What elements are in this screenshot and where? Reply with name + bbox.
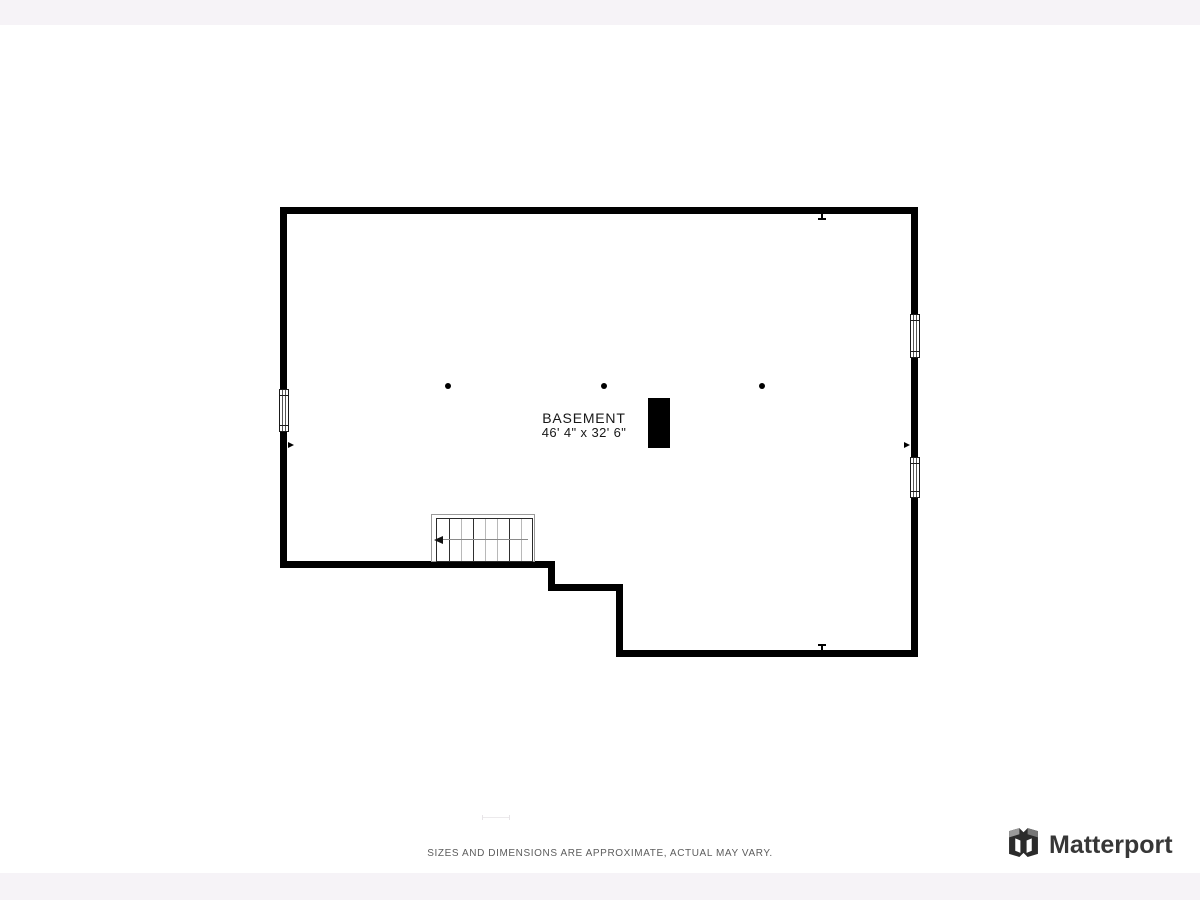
wall-step-vertical-2 [616,584,623,657]
wall-left-lower [280,432,287,568]
wall-right-upper [911,207,918,314]
matterport-cube-icon [1007,826,1040,864]
stair-tread-line [521,519,522,561]
window-right-upper [910,314,920,358]
wall-right-middle [911,358,918,457]
top-band [0,0,1200,25]
support-post-dot [759,383,765,389]
stair-tread-line [485,519,486,561]
window-frame-line [911,491,919,492]
wall-step-horizontal [548,584,623,591]
right-wall-marker-icon [904,442,910,448]
bottom-band [0,873,1200,900]
staircase [436,518,533,562]
brand-wordmark: Matterport [1049,831,1173,860]
stair-direction-line [442,539,528,540]
wall-bottom-left [280,561,555,568]
window-frame-line [911,351,919,352]
wall-top [280,207,918,214]
window-left [279,389,289,432]
stair-tread-line [473,519,474,561]
left-wall-marker-icon [288,442,294,448]
stair-tread-line [449,519,450,561]
stair-direction-arrow-icon [434,536,443,544]
wall-right-lower [911,498,918,657]
stair-tread-line [461,519,462,561]
brand-logo: Matterport [1007,826,1173,864]
bottom-wall-tick-cap [818,644,826,646]
window-frame-line [911,320,919,321]
window-right-lower [910,457,920,498]
room-dimensions: 46' 4" x 32' 6" [484,426,684,441]
stair-tread-line [497,519,498,561]
wall-bottom-right [616,650,918,657]
window-frame-line [280,425,288,426]
faint-scale-mark [482,817,510,818]
support-post-dot [601,383,607,389]
wall-left-upper [280,207,287,390]
room-name: BASEMENT [484,410,684,426]
room-label: BASEMENT 46' 4" x 32' 6" [484,410,684,441]
support-post-dot [445,383,451,389]
stair-tread-line [509,519,510,561]
top-wall-tick-cap [818,218,826,220]
window-frame-line [911,463,919,464]
floorplan-page: BASEMENT 46' 4" x 32' 6" SIZES AND DIMEN… [0,0,1200,900]
window-frame-line [280,395,288,396]
